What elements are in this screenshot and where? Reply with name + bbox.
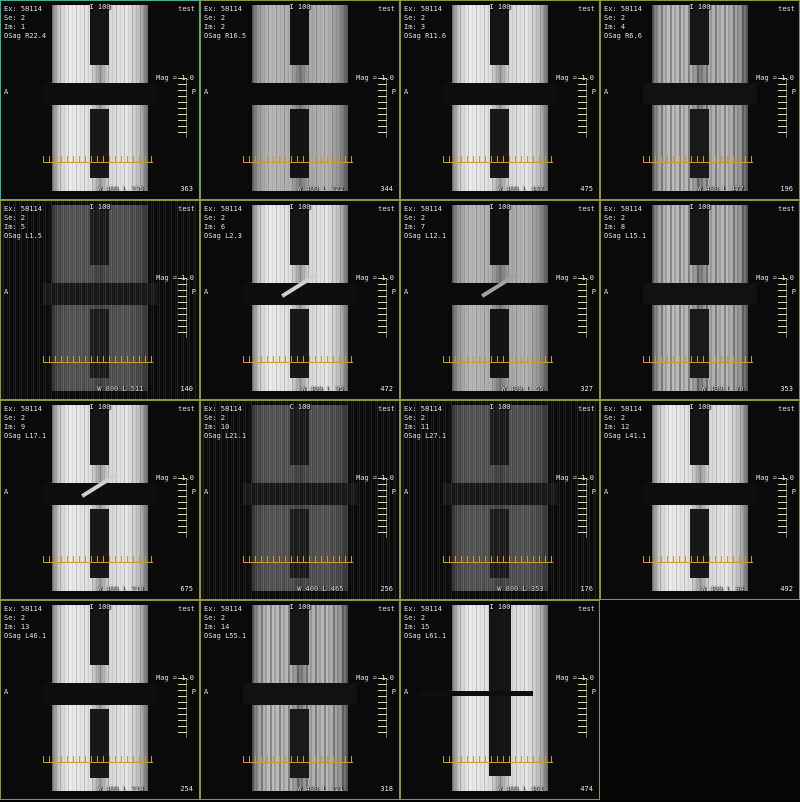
mri-image-cell[interactable]: Ex: 58114 Se: 2 Im: 8 OSag L15.1 I 100 t… — [600, 200, 800, 400]
window-level-label: W 400 L 218 — [1, 585, 144, 594]
window-level-label: W 400 L 221 — [201, 785, 344, 794]
phantom-dark-band — [43, 83, 157, 105]
patient-name-label: test — [778, 205, 795, 214]
slice-position-label: OSag L17.1 — [4, 432, 46, 440]
location-label: I 100 — [401, 603, 599, 612]
location-label: C 100 — [201, 403, 399, 412]
horizontal-scale-ruler — [243, 156, 354, 163]
location-label: I 100 — [1, 203, 199, 212]
slice-position-label: OSag L41.1 — [604, 432, 646, 440]
orientation-marker-right: P — [792, 288, 796, 297]
orientation-marker-right: P — [392, 688, 396, 697]
frame-counter-label: 472 — [380, 385, 393, 394]
vertical-scale-ruler — [178, 478, 187, 537]
orientation-marker-left: A — [404, 688, 408, 697]
frame-counter-label: 318 — [380, 785, 393, 794]
frame-counter-label: 256 — [380, 585, 393, 594]
slice-position-label: OSag R6.6 — [604, 32, 642, 40]
horizontal-scale-ruler — [43, 756, 154, 763]
phantom-top-slot — [490, 5, 509, 65]
phantom-bottom-slot — [90, 709, 109, 778]
location-label: I 100 — [1, 603, 199, 612]
horizontal-scale-ruler — [643, 556, 754, 563]
window-level-label: W 400 L 461 — [401, 785, 544, 794]
phantom-dark-band — [443, 483, 557, 505]
location-label: I 100 — [401, 403, 599, 412]
slice-position-label: OSag L46.1 — [4, 632, 46, 640]
slice-position-label: OSag L2.3 — [204, 232, 242, 240]
patient-name-label: test — [778, 405, 795, 414]
slice-position-label: OSag L55.1 — [204, 632, 246, 640]
orientation-marker-right: P — [192, 88, 196, 97]
horizontal-scale-ruler — [443, 156, 554, 163]
patient-name-label: test — [578, 5, 595, 14]
frame-counter-label: 363 — [180, 185, 193, 194]
horizontal-scale-ruler — [43, 556, 154, 563]
slice-position-label: OSag L21.1 — [204, 432, 246, 440]
phantom-top-slot — [290, 405, 309, 465]
slice-position-label: OSag L15.1 — [604, 232, 646, 240]
frame-counter-label: 176 — [580, 585, 593, 594]
mri-image-cell[interactable]: Ex: 58114 Se: 2 Im: 7 OSag L12.1 I 100 t… — [400, 200, 600, 400]
orientation-marker-left: A — [204, 688, 208, 697]
window-level-label: W 400 L 477 — [601, 185, 744, 194]
magnification-label: Mag = 1.0 — [756, 74, 794, 83]
window-level-label: W 400 L 95 — [201, 385, 344, 394]
orientation-marker-left: A — [404, 88, 408, 97]
orientation-marker-left: A — [4, 288, 8, 297]
phantom-top-slot — [90, 205, 109, 265]
image-number-label: Im: 5 — [4, 223, 25, 231]
window-level-label: W 400 L 84 — [601, 585, 744, 594]
magnification-label: Mag = 1.0 — [356, 474, 394, 483]
vertical-scale-ruler — [178, 78, 187, 137]
series-label: Se: 2 — [404, 614, 425, 622]
window-level-label: W 400 L 70 — [601, 385, 744, 394]
image-number-label: Im: 12 — [604, 423, 629, 431]
orientation-marker-right: P — [392, 288, 396, 297]
image-number-label: Im: 11 — [404, 423, 429, 431]
mri-image-grid: Ex: 58114 Se: 2 Im: 1 OSag R22.4 I 100 t… — [0, 0, 800, 800]
vertical-scale-ruler — [578, 78, 587, 137]
phantom-top-slot — [490, 405, 509, 465]
mri-image-cell[interactable]: Ex: 58114 Se: 2 Im: 3 OSag R11.6 I 100 t… — [400, 0, 600, 200]
phantom-bottom-slot — [290, 709, 309, 778]
orientation-marker-left: A — [204, 488, 208, 497]
magnification-label: Mag = 1.0 — [156, 74, 194, 83]
series-label: Se: 2 — [604, 214, 625, 222]
vertical-scale-ruler — [578, 478, 587, 537]
horizontal-scale-ruler — [243, 356, 354, 363]
orientation-marker-left: A — [204, 88, 208, 97]
horizontal-scale-ruler — [43, 156, 154, 163]
frame-counter-label: 353 — [780, 385, 793, 394]
phantom-dark-band — [243, 483, 357, 505]
magnification-label: Mag = 1.0 — [356, 274, 394, 283]
mri-image-cell[interactable]: Ex: 58114 Se: 2 Im: 12 OSag L41.1 I 100 … — [600, 400, 800, 600]
location-label: I 100 — [1, 403, 199, 412]
phantom-bottom-slot — [90, 309, 109, 378]
horizontal-scale-ruler — [243, 556, 354, 563]
slice-position-label: OSag L61.1 — [404, 632, 446, 640]
vertical-scale-ruler — [578, 278, 587, 337]
image-number-label: Im: 13 — [4, 623, 29, 631]
window-level-label: W 800 L 511 — [1, 385, 144, 394]
location-label: I 100 — [201, 603, 399, 612]
orientation-marker-left: A — [404, 288, 408, 297]
magnification-label: Mag = 1.0 — [756, 474, 794, 483]
series-label: Se: 2 — [604, 414, 625, 422]
window-level-label: W 400 L 214 — [1, 785, 144, 794]
vertical-scale-ruler — [378, 478, 387, 537]
mri-image-cell[interactable]: Ex: 58114 Se: 2 Im: 14 OSag L55.1 I 100 … — [200, 600, 400, 800]
phantom-dark-band — [643, 483, 757, 505]
location-label: I 100 — [401, 203, 599, 212]
mri-image-cell[interactable]: Ex: 58114 Se: 2 Im: 15 OSag L61.1 I 100 … — [400, 600, 600, 800]
patient-name-label: test — [578, 405, 595, 414]
image-number-label: Im: 9 — [4, 423, 25, 431]
orientation-marker-right: P — [592, 88, 596, 97]
phantom-dark-band — [243, 683, 357, 705]
image-number-label: Im: 3 — [404, 23, 425, 31]
magnification-label: Mag = 1.0 — [156, 474, 194, 483]
slice-position-label: OSag R22.4 — [4, 32, 46, 40]
phantom-top-slot — [290, 5, 309, 65]
magnification-label: Mag = 1.0 — [556, 474, 594, 483]
phantom-bottom-slot — [90, 509, 109, 578]
phantom-bottom-slot — [490, 509, 509, 578]
patient-name-label: test — [178, 205, 195, 214]
series-label: Se: 2 — [4, 214, 25, 222]
image-number-label: Im: 1 — [4, 23, 25, 31]
series-label: Se: 2 — [204, 614, 225, 622]
orientation-marker-left: A — [4, 688, 8, 697]
phantom-dark-band — [643, 83, 757, 105]
series-label: Se: 2 — [404, 214, 425, 222]
series-label: Se: 2 — [404, 414, 425, 422]
mri-image-cell[interactable]: Ex: 58114 Se: 2 Im: 13 OSag L46.1 I 100 … — [0, 600, 200, 800]
series-label: Se: 2 — [604, 14, 625, 22]
magnification-label: Mag = 1.0 — [156, 674, 194, 683]
vertical-scale-ruler — [178, 678, 187, 737]
horizontal-scale-ruler — [443, 556, 554, 563]
phantom-dark-band — [443, 83, 557, 105]
magnification-label: Mag = 1.0 — [556, 674, 594, 683]
orientation-marker-right: P — [792, 88, 796, 97]
phantom-bottom-slot — [490, 309, 509, 378]
vertical-scale-ruler — [378, 678, 387, 737]
location-label: I 100 — [1, 3, 199, 12]
phantom-bottom-slot — [490, 109, 509, 178]
vertical-scale-ruler — [378, 278, 387, 337]
phantom-dark-band — [43, 283, 157, 305]
vertical-scale-ruler — [778, 78, 787, 137]
patient-name-label: test — [178, 405, 195, 414]
frame-counter-label: 492 — [780, 585, 793, 594]
frame-counter-label: 140 — [180, 385, 193, 394]
phantom-bottom-slot — [290, 309, 309, 378]
phantom-bottom-slot — [690, 109, 709, 178]
frame-counter-label: 327 — [580, 385, 593, 394]
vertical-scale-ruler — [778, 478, 787, 537]
phantom-top-slot — [290, 205, 309, 265]
patient-name-label: test — [578, 205, 595, 214]
phantom-bottom-slot — [290, 509, 309, 578]
orientation-marker-right: P — [592, 288, 596, 297]
orientation-marker-left: A — [4, 488, 8, 497]
frame-counter-label: 675 — [180, 585, 193, 594]
patient-name-label: test — [178, 605, 195, 614]
phantom-bottom-slot — [690, 509, 709, 578]
orientation-marker-right: P — [392, 488, 396, 497]
phantom-top-slot — [90, 405, 109, 465]
phantom-top-slot — [290, 605, 309, 665]
patient-name-label: test — [378, 205, 395, 214]
image-number-label: Im: 14 — [204, 623, 229, 631]
orientation-marker-left: A — [604, 288, 608, 297]
patient-name-label: test — [378, 605, 395, 614]
location-label: I 100 — [601, 203, 799, 212]
magnification-label: Mag = 1.0 — [356, 74, 394, 83]
orientation-marker-right: P — [592, 488, 596, 497]
window-level-label: W 800 L 353 — [401, 585, 544, 594]
horizontal-scale-ruler — [443, 756, 554, 763]
orientation-marker-right: P — [192, 288, 196, 297]
mri-image-cell[interactable]: Ex: 58114 Se: 2 Im: 10 OSag L21.1 C 100 … — [200, 400, 400, 600]
window-level-label: W 400 L 447 — [401, 185, 544, 194]
phantom-top-slot — [690, 5, 709, 65]
slice-position-label: OSag R16.5 — [204, 32, 246, 40]
slice-position-label: OSag L12.1 — [404, 232, 446, 240]
image-number-label: Im: 8 — [604, 223, 625, 231]
orientation-marker-right: P — [192, 688, 196, 697]
phantom-bottom-slot — [690, 309, 709, 378]
location-label: I 100 — [201, 3, 399, 12]
patient-name-label: test — [378, 5, 395, 14]
series-label: Se: 2 — [4, 414, 25, 422]
patient-name-label: test — [378, 405, 395, 414]
vertical-scale-ruler — [778, 278, 787, 337]
patient-name-label: test — [178, 5, 195, 14]
frame-counter-label: 344 — [380, 185, 393, 194]
image-number-label: Im: 4 — [604, 23, 625, 31]
series-label: Se: 2 — [204, 14, 225, 22]
orientation-marker-left: A — [4, 88, 8, 97]
phantom-top-slot — [690, 405, 709, 465]
phantom-top-slot — [490, 205, 509, 265]
phantom-dark-band — [243, 83, 357, 105]
image-number-label: Im: 6 — [204, 223, 225, 231]
image-number-label: Im: 15 — [404, 623, 429, 631]
orientation-marker-right: P — [192, 488, 196, 497]
orientation-marker-left: A — [604, 488, 608, 497]
image-number-label: Im: 10 — [204, 423, 229, 431]
mri-image-cell[interactable]: Ex: 58114 Se: 2 Im: 2 OSag R16.5 I 100 t… — [200, 0, 400, 200]
mri-image-cell[interactable]: Ex: 58114 Se: 2 Im: 11 OSag L27.1 I 100 … — [400, 400, 600, 600]
window-level-label: W 400 L 55 — [401, 385, 544, 394]
window-level-label: W 400 L 235 — [1, 185, 144, 194]
magnification-label: Mag = 1.0 — [556, 74, 594, 83]
horizontal-scale-ruler — [43, 356, 154, 363]
slice-position-label: OSag L27.1 — [404, 432, 446, 440]
phantom-top-slot — [90, 605, 109, 665]
mri-image-cell[interactable]: Ex: 58114 Se: 2 Im: 5 OSag L1.5 I 100 te… — [0, 200, 200, 400]
phantom-bottom-slot — [290, 109, 309, 178]
orientation-marker-left: A — [404, 488, 408, 497]
frame-counter-label: 196 — [780, 185, 793, 194]
series-label: Se: 2 — [204, 414, 225, 422]
horizontal-scale-ruler — [643, 356, 754, 363]
horizontal-scale-ruler — [443, 356, 554, 363]
phantom-dark-band — [43, 683, 157, 705]
location-label: I 100 — [601, 403, 799, 412]
orientation-marker-right: P — [792, 488, 796, 497]
window-level-label: W 400 L 222 — [201, 185, 344, 194]
horizontal-scale-ruler — [643, 156, 754, 163]
vertical-scale-ruler — [578, 678, 587, 737]
slice-position-label: OSag L1.5 — [4, 232, 42, 240]
orientation-marker-right: P — [592, 688, 596, 697]
frame-counter-label: 474 — [580, 785, 593, 794]
phantom-top-slot — [690, 205, 709, 265]
mri-image-cell[interactable]: Ex: 58114 Se: 2 Im: 9 OSag L17.1 I 100 t… — [0, 400, 200, 600]
location-label: I 100 — [401, 3, 599, 12]
phantom-bottom-slot — [90, 109, 109, 178]
series-label: Se: 2 — [404, 14, 425, 22]
orientation-marker-left: A — [204, 288, 208, 297]
location-label: I 100 — [201, 203, 399, 212]
empty-cell — [600, 600, 800, 800]
phantom-dark-band — [643, 283, 757, 305]
magnification-label: Mag = 1.0 — [756, 274, 794, 283]
magnification-label: Mag = 1.0 — [356, 674, 394, 683]
mri-image-cell[interactable]: Ex: 58114 Se: 2 Im: 6 OSag L2.3 I 100 te… — [200, 200, 400, 400]
vertical-scale-ruler — [378, 78, 387, 137]
vertical-scale-ruler — [178, 278, 187, 337]
patient-name-label: test — [778, 5, 795, 14]
series-label: Se: 2 — [204, 214, 225, 222]
phantom-dark-band — [419, 691, 533, 697]
window-level-label: W 400 L 465 — [201, 585, 344, 594]
series-label: Se: 2 — [4, 614, 25, 622]
image-number-label: Im: 7 — [404, 223, 425, 231]
image-number-label: Im: 2 — [204, 23, 225, 31]
phantom-top-slot — [90, 5, 109, 65]
patient-name-label: test — [578, 605, 595, 614]
mri-image-cell[interactable]: Ex: 58114 Se: 2 Im: 1 OSag R22.4 I 100 t… — [0, 0, 200, 200]
horizontal-scale-ruler — [243, 756, 354, 763]
frame-counter-label: 475 — [580, 185, 593, 194]
magnification-label: Mag = 1.0 — [156, 274, 194, 283]
orientation-marker-left: A — [604, 88, 608, 97]
frame-counter-label: 254 — [180, 785, 193, 794]
mri-image-cell[interactable]: Ex: 58114 Se: 2 Im: 4 OSag R6.6 I 100 te… — [600, 0, 800, 200]
series-label: Se: 2 — [4, 14, 25, 22]
location-label: I 100 — [601, 3, 799, 12]
orientation-marker-right: P — [392, 88, 396, 97]
magnification-label: Mag = 1.0 — [556, 274, 594, 283]
slice-position-label: OSag R11.6 — [404, 32, 446, 40]
